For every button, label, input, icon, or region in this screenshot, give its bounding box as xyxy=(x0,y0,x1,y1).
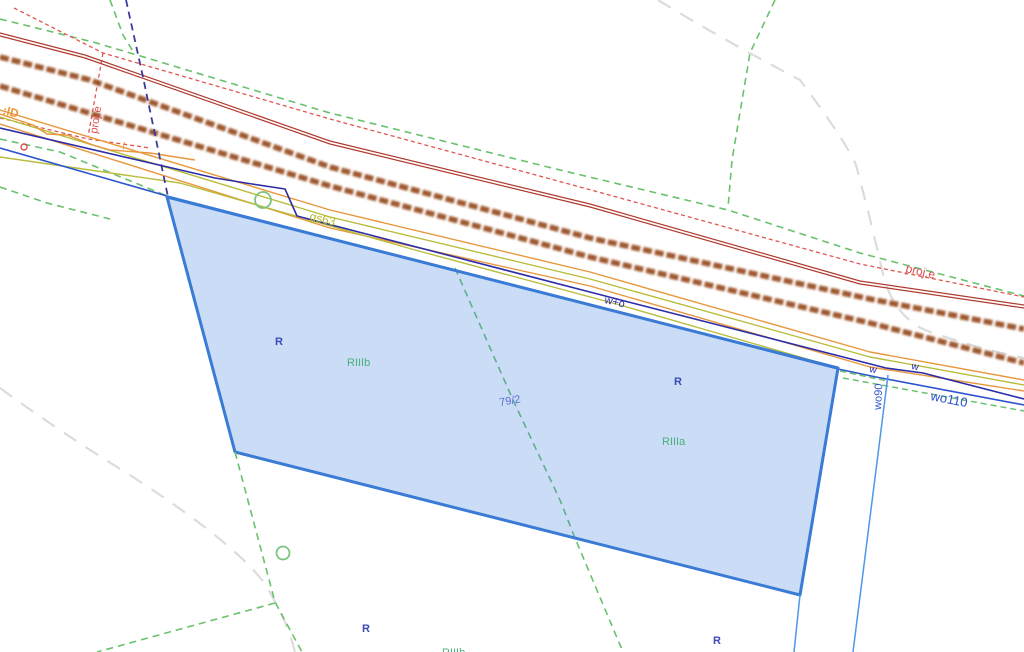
boundary-green-west-lower xyxy=(0,187,110,219)
label-landuse-r-1: R xyxy=(275,336,283,348)
boundary-green-main xyxy=(0,19,1024,296)
label-proj-e-right: proj.e xyxy=(904,261,937,281)
boundary-green-vertical-right xyxy=(728,0,775,208)
boundary-green-south xyxy=(235,452,302,652)
label-soil-riiia: RIIIa xyxy=(662,436,686,448)
label-gs63: gs63 xyxy=(308,209,337,229)
red-line-upper xyxy=(0,33,1024,305)
label-proj-e-left: proj.e xyxy=(88,105,104,134)
label-landuse-r-3: R xyxy=(362,623,370,635)
map-canvas[interactable]: :lD proj.e l gs63 w+o proj.e w w wo90 wo… xyxy=(0,0,1024,652)
label-wo110: wo110 xyxy=(928,388,969,410)
boundary-green-branch-top-left xyxy=(110,0,134,53)
boundary-green-south-branch xyxy=(97,603,275,652)
corridor-edge-right xyxy=(853,375,888,652)
tree-marker-south xyxy=(277,547,290,560)
label-w-b: w xyxy=(909,361,920,373)
label-soil-riiib-2: RIIIb xyxy=(442,647,465,652)
dashed-crossing-line xyxy=(126,0,168,197)
projected-line-red-dotted xyxy=(14,8,1024,297)
corridor-edge-left xyxy=(794,595,800,652)
label-w-a: w xyxy=(867,364,878,376)
label-landuse-r-4: R xyxy=(713,635,721,647)
terrain-scarp-line-northeast xyxy=(658,0,1024,358)
label-soil-riiib-1: RIIIb xyxy=(347,357,370,369)
label-landuse-r-2: R xyxy=(674,376,682,388)
cadastral-map-layer: :lD proj.e l gs63 w+o proj.e w w wo90 wo… xyxy=(0,0,1024,652)
tree-marker-north xyxy=(255,192,271,208)
label-wo90: wo90 xyxy=(872,383,885,411)
